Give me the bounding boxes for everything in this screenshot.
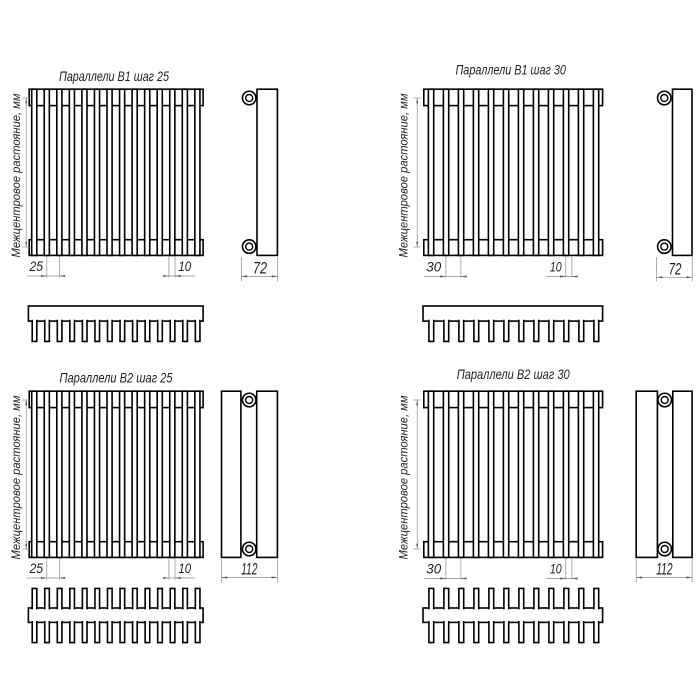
svg-text:Межцентровое растояние, мм: Межцентровое растояние, мм [397,396,411,560]
svg-text:25: 25 [29,258,44,274]
svg-text:112: 112 [241,561,257,579]
svg-text:72: 72 [669,261,682,279]
svg-text:25: 25 [29,560,44,576]
svg-text:Параллели В1 шаг 30: Параллели В1 шаг 30 [455,61,566,77]
svg-text:Межцентровое растояние, мм: Межцентровое растояние, мм [9,94,23,258]
svg-text:30: 30 [426,561,441,577]
svg-text:10: 10 [550,561,562,577]
svg-text:Параллели В2 шаг 30: Параллели В2 шаг 30 [457,366,570,382]
svg-text:10: 10 [550,259,562,275]
svg-text:Параллели В2 шаг 25: Параллели В2 шаг 25 [60,370,173,386]
svg-text:10: 10 [178,560,191,576]
svg-text:72: 72 [253,260,267,278]
svg-text:Межцентровое растояние, мм: Межцентровое растояние, мм [397,94,411,258]
svg-text:112: 112 [656,561,672,579]
svg-text:Межцентровое растояние, мм: Межцентровое растояние, мм [9,396,23,560]
svg-text:Параллели В1 шаг 25: Параллели В1 шаг 25 [59,68,169,84]
svg-text:10: 10 [178,258,191,274]
svg-text:30: 30 [426,259,441,275]
